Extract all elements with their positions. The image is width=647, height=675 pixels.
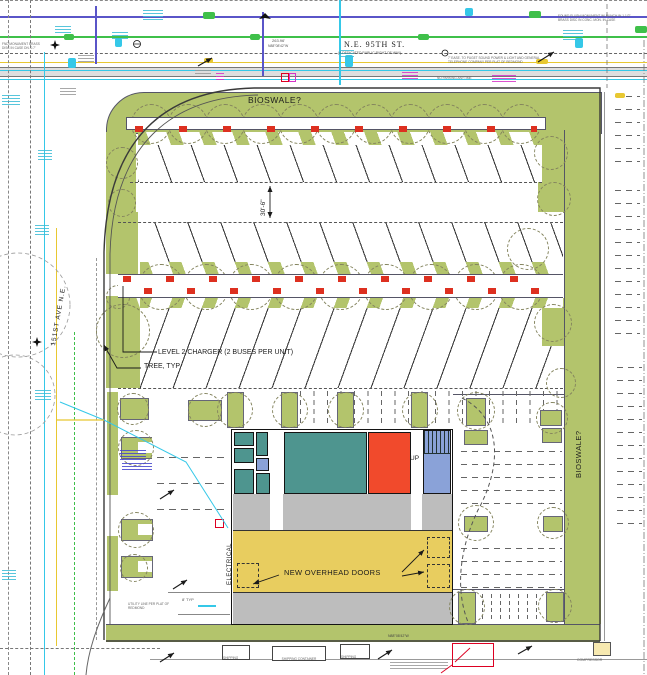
ev-charger-row xyxy=(144,288,556,294)
aisle-dimension-label: 30'-6" xyxy=(260,199,267,216)
flow-arrow-icon xyxy=(378,650,392,659)
overhead-door xyxy=(427,564,450,588)
tree-canopy xyxy=(272,392,308,428)
site-plan-canvas: SHIPPING CONTAINER SHIPPING CONTAINER SH… xyxy=(0,0,647,675)
stairs-up-label: UP xyxy=(410,455,419,462)
utility-pole-power xyxy=(95,6,97,64)
tree-canopy xyxy=(537,507,569,539)
room-teal xyxy=(234,448,254,463)
plat-bearing: N88°08'42"W xyxy=(268,44,288,48)
utility-symbol-comm xyxy=(615,93,625,98)
micro-note xyxy=(78,55,94,62)
tree-canopy xyxy=(457,392,495,430)
tree-canopy xyxy=(118,430,154,466)
room-teal xyxy=(234,432,254,446)
plat-distance: 263.96' xyxy=(272,38,285,43)
utility-note: UTILITY LINE PER PLAT OF REDMOND xyxy=(128,602,178,610)
street-stalls-east xyxy=(610,94,640,162)
utility-line-gas xyxy=(74,332,75,675)
bay-gray-south xyxy=(233,593,452,624)
utility-symbol-gas xyxy=(418,34,429,40)
utility-symbol-comm xyxy=(204,58,213,63)
shipping-container-box: SHIPPING CONTAINER xyxy=(340,644,370,659)
overhead-door xyxy=(237,563,259,588)
tree-canopy xyxy=(536,402,568,434)
utility-line-water xyxy=(0,70,647,71)
room-shop-large xyxy=(284,432,367,494)
overhead-door xyxy=(427,537,450,558)
equipment-marker xyxy=(215,519,224,528)
flow-arrow-icon xyxy=(173,580,187,589)
monument-note-ne: FOUND FLUSH MONUMENT W/ PUNCH IN 1-1/2" … xyxy=(558,14,640,22)
room-teal xyxy=(234,469,254,494)
bioswale-top-label: BIOSWALE? xyxy=(248,95,301,105)
north-street-subtitle: (A DEDICATED PUBLIC RIGHT OF WAY) xyxy=(338,51,401,55)
tree-canopy xyxy=(117,393,149,425)
micro-note xyxy=(112,32,128,41)
no-parking-note: NO PARKING ANYTIME xyxy=(437,76,477,80)
charger-callout-label: LEVEL 2 CHARGER (2 BUSES PER UNIT) xyxy=(158,349,293,356)
tree-callout-label: TREE, TYP xyxy=(144,363,180,370)
ev-charger-row xyxy=(135,126,537,132)
survey-mark-magenta xyxy=(289,73,296,82)
flow-arrow-icon xyxy=(518,646,532,654)
planter-left-streak xyxy=(107,536,118,591)
curb-band xyxy=(0,67,647,77)
utility-pole-power xyxy=(262,12,264,76)
micro-note xyxy=(2,95,20,105)
flow-arrow-icon xyxy=(160,653,174,662)
micro-note xyxy=(55,26,71,35)
micro-note xyxy=(216,73,224,81)
room-teal xyxy=(256,473,270,494)
micro-note xyxy=(35,390,51,400)
vehicle-turn-template xyxy=(452,643,494,667)
tree-canopy xyxy=(507,228,549,270)
curb-line xyxy=(168,592,230,593)
corridor xyxy=(270,494,283,530)
street-stalls-east xyxy=(612,356,642,524)
survey-mark-red xyxy=(281,73,289,82)
shipping-container-label: SHIPPING CONTAINER xyxy=(223,656,242,660)
monument-star-icon xyxy=(50,40,60,50)
room-teal xyxy=(256,432,268,456)
aisle-edge xyxy=(118,222,563,223)
aisle-edge xyxy=(118,388,563,389)
tree-canopy xyxy=(108,189,136,217)
tree-canopy xyxy=(328,392,364,428)
utility-symbol-gas xyxy=(250,34,260,40)
room-red xyxy=(368,432,411,494)
street-centerline xyxy=(30,0,31,675)
monument-circle-icon xyxy=(134,41,141,48)
utility-line-water-cross xyxy=(339,0,341,85)
tree-canopy xyxy=(96,304,150,358)
property-line-east-offset xyxy=(604,92,605,641)
micro-note xyxy=(122,463,152,471)
tree-canopy xyxy=(534,136,568,170)
utility-symbol-gas xyxy=(203,12,215,19)
utility-mark-cyan xyxy=(198,605,216,607)
room-restroom xyxy=(256,458,269,471)
micro-note xyxy=(492,75,516,84)
stall-dim-label: 8' TYP xyxy=(182,597,194,602)
electrical-room-label: ELECTRICAL xyxy=(227,543,233,585)
micro-note xyxy=(195,70,211,76)
tree-canopy xyxy=(118,512,154,548)
micro-note xyxy=(143,10,163,22)
right-of-way-line xyxy=(96,258,97,640)
curb-line xyxy=(178,614,230,615)
tree-canopy xyxy=(538,589,572,623)
shipping-container-label: SHIPPING CONTAINER xyxy=(282,657,317,661)
car-stalls-south xyxy=(482,592,542,622)
easement-note: 7' EASE. TO PUGET SOUND POWER & LIGHT AN… xyxy=(448,56,553,64)
tree-canopy xyxy=(120,554,148,582)
utility-line-comm xyxy=(56,228,57,646)
tree-canopy xyxy=(458,505,494,541)
bay-yellow-maintenance xyxy=(233,530,452,593)
bioswale-right-label: BIOSWALE? xyxy=(574,430,583,478)
aisle-edge xyxy=(130,182,542,183)
future-stalls-east xyxy=(456,538,562,588)
tree-canopy xyxy=(217,392,253,428)
tree-canopy xyxy=(537,182,571,216)
micro-note xyxy=(60,88,76,95)
micro-note xyxy=(563,30,583,42)
future-stalls-east xyxy=(456,446,562,504)
ev-charger-row xyxy=(123,276,535,282)
tree-canopy xyxy=(188,393,222,427)
micro-note xyxy=(2,570,16,580)
micro-note xyxy=(35,225,49,235)
street-stalls-east xyxy=(610,186,640,334)
tree-canopy xyxy=(449,589,485,625)
shipping-container-box: SHIPPING CONTAINER xyxy=(272,646,326,661)
micro-note xyxy=(38,150,52,160)
tree-canopy xyxy=(402,392,438,428)
monument-star-icon xyxy=(32,337,42,347)
south-bearing-label: N88°08'42"W xyxy=(388,634,409,638)
utility-line-water xyxy=(44,52,45,675)
utility-line-water xyxy=(0,79,647,80)
utility-line-power xyxy=(0,16,647,18)
shipping-container-label: SHIPPING CONTAINER xyxy=(341,655,360,659)
landscape-strip-bottom xyxy=(106,624,600,642)
compressor-box xyxy=(593,642,611,656)
utility-symbol-hydrant xyxy=(68,58,76,68)
compressor-label: COMPRESSOR xyxy=(577,658,617,662)
utility-line-gas xyxy=(0,36,647,38)
stair-treads xyxy=(424,431,450,454)
overhead-doors-label: NEW OVERHEAD DOORS xyxy=(284,568,381,577)
utility-symbol-gas xyxy=(635,26,647,33)
planter-island xyxy=(464,430,488,445)
micro-note xyxy=(402,72,418,79)
north-street-label: N.E. 95TH ST. xyxy=(344,40,405,49)
corridor xyxy=(411,494,422,530)
car-stalls-west-of-building xyxy=(152,432,228,510)
street-centerline xyxy=(0,53,647,54)
tree-canopy xyxy=(546,368,576,398)
tree-canopy xyxy=(534,304,572,342)
street-centerline xyxy=(0,0,647,1)
utility-symbol-hydrant xyxy=(465,8,473,16)
micro-note xyxy=(120,450,146,460)
street-edge xyxy=(0,648,160,649)
micro-note xyxy=(390,662,448,669)
west-street-label: 151ST AVE N.E. xyxy=(50,284,68,346)
utility-symbol-gas xyxy=(529,11,541,18)
shipping-container-box: SHIPPING CONTAINER xyxy=(222,645,250,660)
tree-canopy xyxy=(106,147,138,179)
monument-note-nw: FND MONUMENT BRASS DISC IN CASE DN. 0.7' xyxy=(2,42,40,50)
